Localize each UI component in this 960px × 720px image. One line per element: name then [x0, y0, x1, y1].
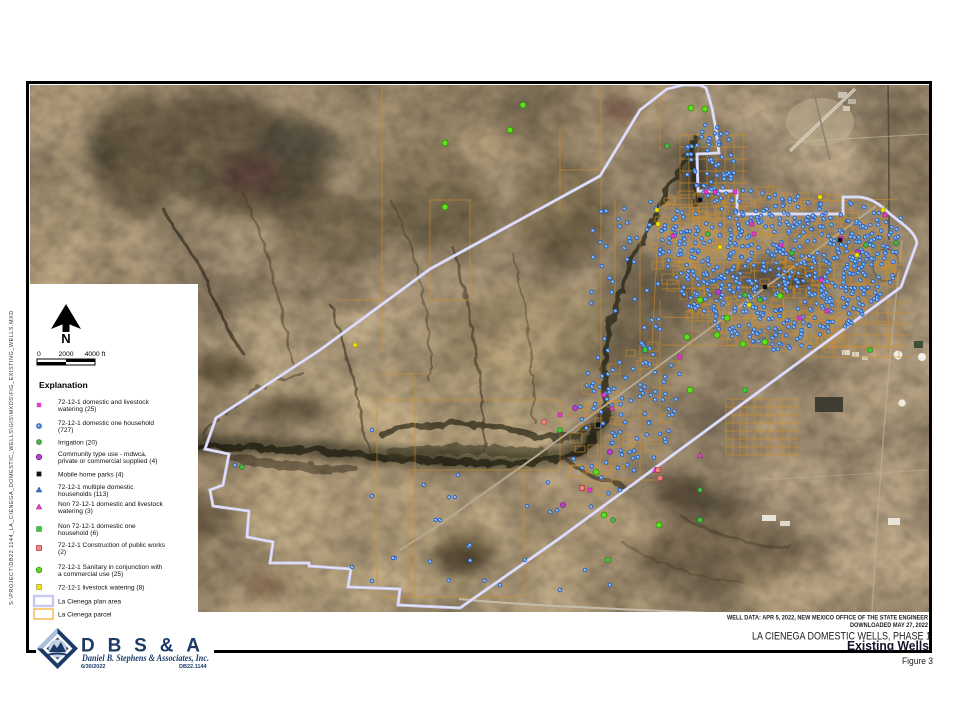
svg-text:2000: 2000: [58, 351, 73, 358]
svg-text:N: N: [61, 331, 70, 346]
svg-text:DB22.1144: DB22.1144: [179, 664, 207, 670]
svg-text:S:\PROJECT\DB22.1144_LA_CIENEG: S:\PROJECT\DB22.1144_LA_CIENEGA_DOMESTIC…: [9, 310, 15, 605]
svg-text:72-12-1 domestic one household: 72-12-1 domestic one household: [58, 420, 154, 427]
svg-text:WELL DATA: APR 5, 2022, NEW ME: WELL DATA: APR 5, 2022, NEW MEXICO OFFIC…: [727, 615, 928, 622]
svg-text:Existing Wells: Existing Wells: [847, 638, 929, 653]
svg-text:72-12-1 multiple domestic: 72-12-1 multiple domestic: [58, 484, 134, 491]
svg-text:La Cienega parcel: La Cienega parcel: [58, 612, 112, 619]
svg-text:households (113): households (113): [58, 491, 108, 498]
svg-text:DOWNLOADED MAY 27, 2022: DOWNLOADED MAY 27, 2022: [850, 622, 928, 629]
svg-text:72-12-1 Sanitary in conjunctio: 72-12-1 Sanitary in conjunction with: [58, 564, 163, 571]
svg-text:watering (3): watering (3): [57, 508, 93, 515]
svg-text:72-12-1 Construction of public: 72-12-1 Construction of public works: [58, 542, 166, 549]
svg-text:La Cienega plan area: La Cienega plan area: [58, 599, 121, 606]
svg-text:72-12-1 livestock watering (8): 72-12-1 livestock watering (8): [58, 585, 145, 592]
svg-text:Daniel B. Stephens & Associate: Daniel B. Stephens & Associates, Inc.: [81, 653, 209, 664]
svg-text:Non 72-12-1 domestic one: Non 72-12-1 domestic one: [58, 523, 136, 530]
svg-text:Explanation: Explanation: [39, 380, 88, 390]
svg-text:household (6): household (6): [58, 530, 98, 537]
svg-text:Mobile home parks (4): Mobile home parks (4): [58, 472, 124, 479]
svg-text:Figure 3: Figure 3: [902, 656, 933, 666]
svg-text:0: 0: [37, 351, 41, 358]
svg-text:Non 72-12-1 domestic and lives: Non 72-12-1 domestic and livestock: [58, 501, 164, 508]
svg-text:Irrigation (20): Irrigation (20): [58, 440, 97, 447]
svg-text:(727): (727): [58, 427, 73, 434]
svg-text:private or commercial supplied: private or commercial supplied (4): [58, 458, 157, 465]
svg-text:watering (25): watering (25): [57, 406, 96, 413]
svg-text:a commercial use (25): a commercial use (25): [58, 571, 123, 578]
svg-text:4000 ft: 4000 ft: [85, 351, 106, 358]
svg-text:6/30/2022: 6/30/2022: [81, 664, 105, 670]
svg-text:Community type use - mdwca,: Community type use - mdwca,: [58, 451, 147, 458]
svg-text:72-12-1 domestic and livestock: 72-12-1 domestic and livestock: [58, 399, 150, 406]
svg-text:(2): (2): [58, 549, 66, 556]
